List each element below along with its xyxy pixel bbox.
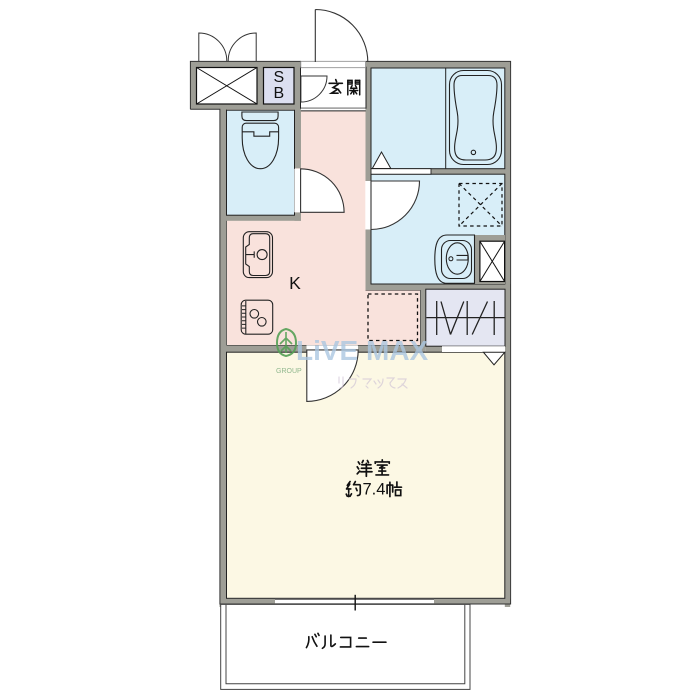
svg-text:B: B [273, 85, 284, 102]
svg-text:S: S [273, 69, 284, 86]
svg-text:K: K [289, 273, 301, 293]
svg-text:7.4: 7.4 [363, 481, 386, 499]
svg-text:GROUP: GROUP [276, 368, 302, 375]
svg-text:LiVE MAX: LiVE MAX [296, 335, 429, 366]
